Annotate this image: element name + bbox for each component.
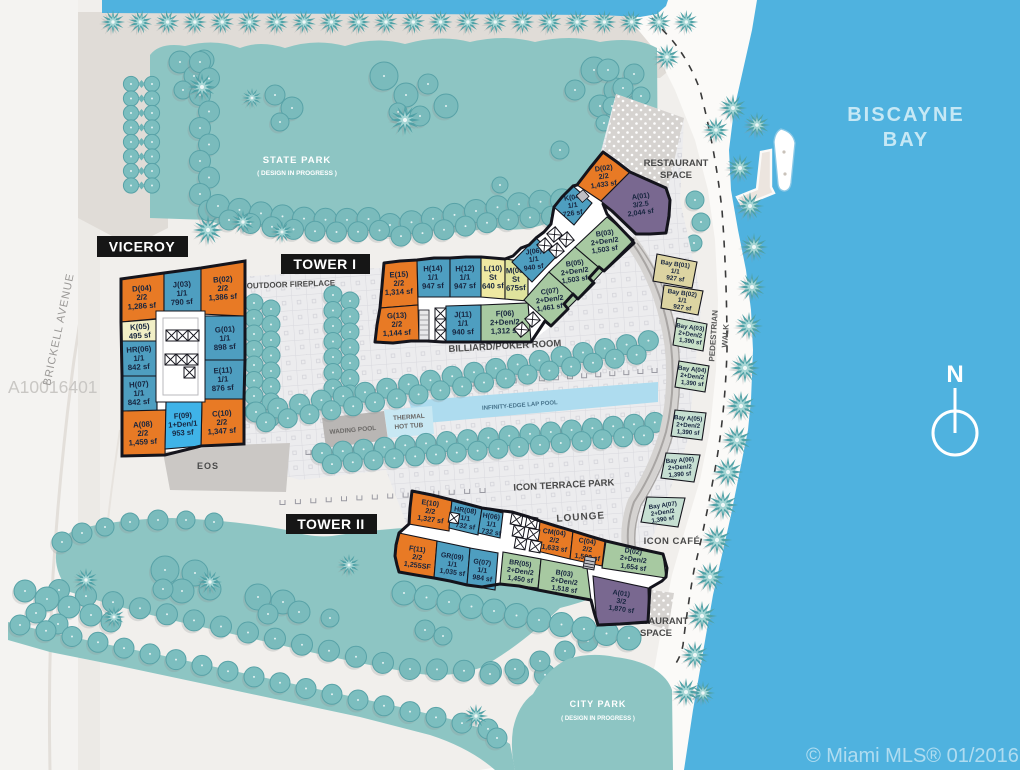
svg-text:940 sf: 940 sf <box>452 327 475 337</box>
svg-text:898 sf: 898 sf <box>213 342 236 353</box>
svg-text:876 sf: 876 sf <box>211 383 234 394</box>
svg-text:SPACE: SPACE <box>660 170 692 181</box>
svg-text:1,314 sf: 1,314 sf <box>385 287 414 297</box>
svg-text:495 sf: 495 sf <box>128 330 151 341</box>
svg-text:VICEROY: VICEROY <box>109 239 176 255</box>
svg-text:1,144 sf: 1,144 sf <box>383 328 412 338</box>
svg-text:© Miami MLS® 01/2016: © Miami MLS® 01/2016 <box>806 745 1019 767</box>
svg-text:EOS: EOS <box>197 461 219 471</box>
svg-text:RESTAURANT: RESTAURANT <box>644 158 709 169</box>
svg-text:790 sf: 790 sf <box>170 297 193 308</box>
svg-text:SPACE: SPACE <box>640 628 672 639</box>
svg-text:947 sf: 947 sf <box>422 281 445 291</box>
svg-text:ICON CAFÉ: ICON CAFÉ <box>644 536 701 547</box>
svg-text:953 sf: 953 sf <box>172 427 195 438</box>
svg-text:( DESIGN IN PROGRESS ): ( DESIGN IN PROGRESS ) <box>257 170 337 177</box>
svg-text:842 sf: 842 sf <box>127 397 150 408</box>
svg-text:WALK: WALK <box>720 324 731 348</box>
svg-text:TOWER I: TOWER I <box>293 256 356 272</box>
svg-text:842 sf: 842 sf <box>127 362 150 373</box>
svg-text:BAY: BAY <box>883 129 929 151</box>
svg-text:947 sf: 947 sf <box>454 281 477 291</box>
svg-text:BISCAYNE: BISCAYNE <box>847 104 965 126</box>
svg-text:CITY PARK: CITY PARK <box>570 699 627 709</box>
svg-text:640 sf: 640 sf <box>482 281 505 291</box>
svg-text:N: N <box>946 361 963 388</box>
svg-text:675sf: 675sf <box>506 283 526 293</box>
svg-text:( DESIGN IN PROGRESS ): ( DESIGN IN PROGRESS ) <box>561 716 635 722</box>
svg-text:TOWER II: TOWER II <box>297 516 365 532</box>
svg-text:STATE PARK: STATE PARK <box>263 155 332 166</box>
